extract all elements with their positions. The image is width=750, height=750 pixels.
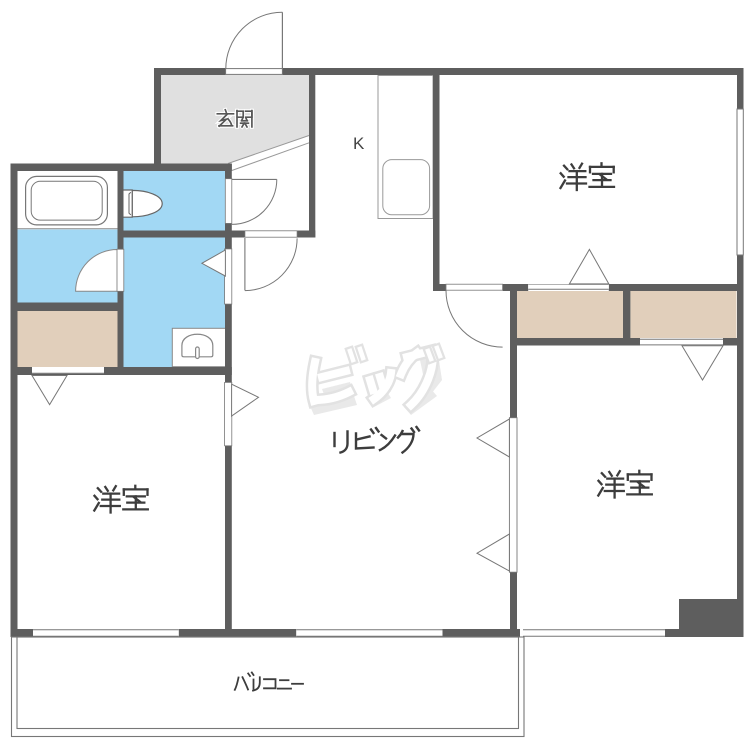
svg-text:K: K	[353, 134, 365, 153]
